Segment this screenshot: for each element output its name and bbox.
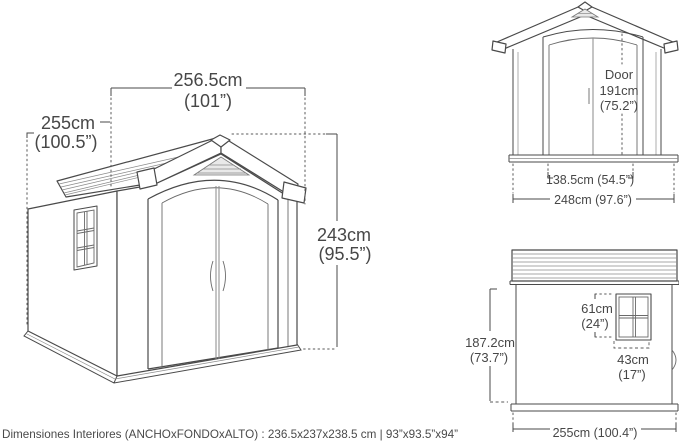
side-handle-icon [672,350,676,370]
window-height-label-cm: 61cm [581,301,613,316]
wall-height-label-cm: 187.2cm [465,335,515,350]
side-view-drawing: 61cm (24”) 43cm (17”) 187.2cm (73.7”) 25… [465,250,679,440]
door-width-label: 138.5cm (54.5”) [546,173,634,187]
side-window-icon [74,206,97,270]
width-label-cm: 256.5cm [173,70,242,90]
overall-width-label: 248cm (97.6”) [554,193,632,207]
wall-height-label-in: (73.7”) [470,350,508,365]
window-width-label-in: (17”) [618,367,645,382]
side-roof [510,250,679,285]
diagram-canvas: 256.5cm (101”) 255cm (100.5”) 243cm (95.… [0,0,679,443]
window-width-dimension [614,341,649,348]
width-label-in: (101”) [184,91,232,111]
height-label-cm: 243cm [317,225,371,245]
shed-dimensions-diagram: 256.5cm (101”) 255cm (100.5”) 243cm (95.… [0,0,679,443]
door-height-label-cm: 191cm [599,83,638,98]
height-label-in: (95.5”) [318,244,371,264]
perspective-shed-drawing: 256.5cm (101”) 255cm (100.5”) 243cm (95.… [24,70,372,383]
depth-label-cm: 255cm [41,113,95,133]
door-height-label-in: (75.2”) [600,98,638,113]
door-title-label: Door [605,67,634,82]
window-width-label-cm: 43cm [617,352,649,367]
window-height-label-in: (24”) [581,316,608,331]
depth-label-in: (100.5”) [34,132,97,152]
front-view-drawing: Door 191cm (75.2”) 138.5cm (54.5”) 248cm… [492,2,678,207]
side-window-icon [616,294,651,340]
interior-dimensions-text: Dimensiones Interiores (ANCHOxFONDOxALTO… [2,428,458,441]
overall-depth-label: 255cm (100.4”) [553,426,638,440]
